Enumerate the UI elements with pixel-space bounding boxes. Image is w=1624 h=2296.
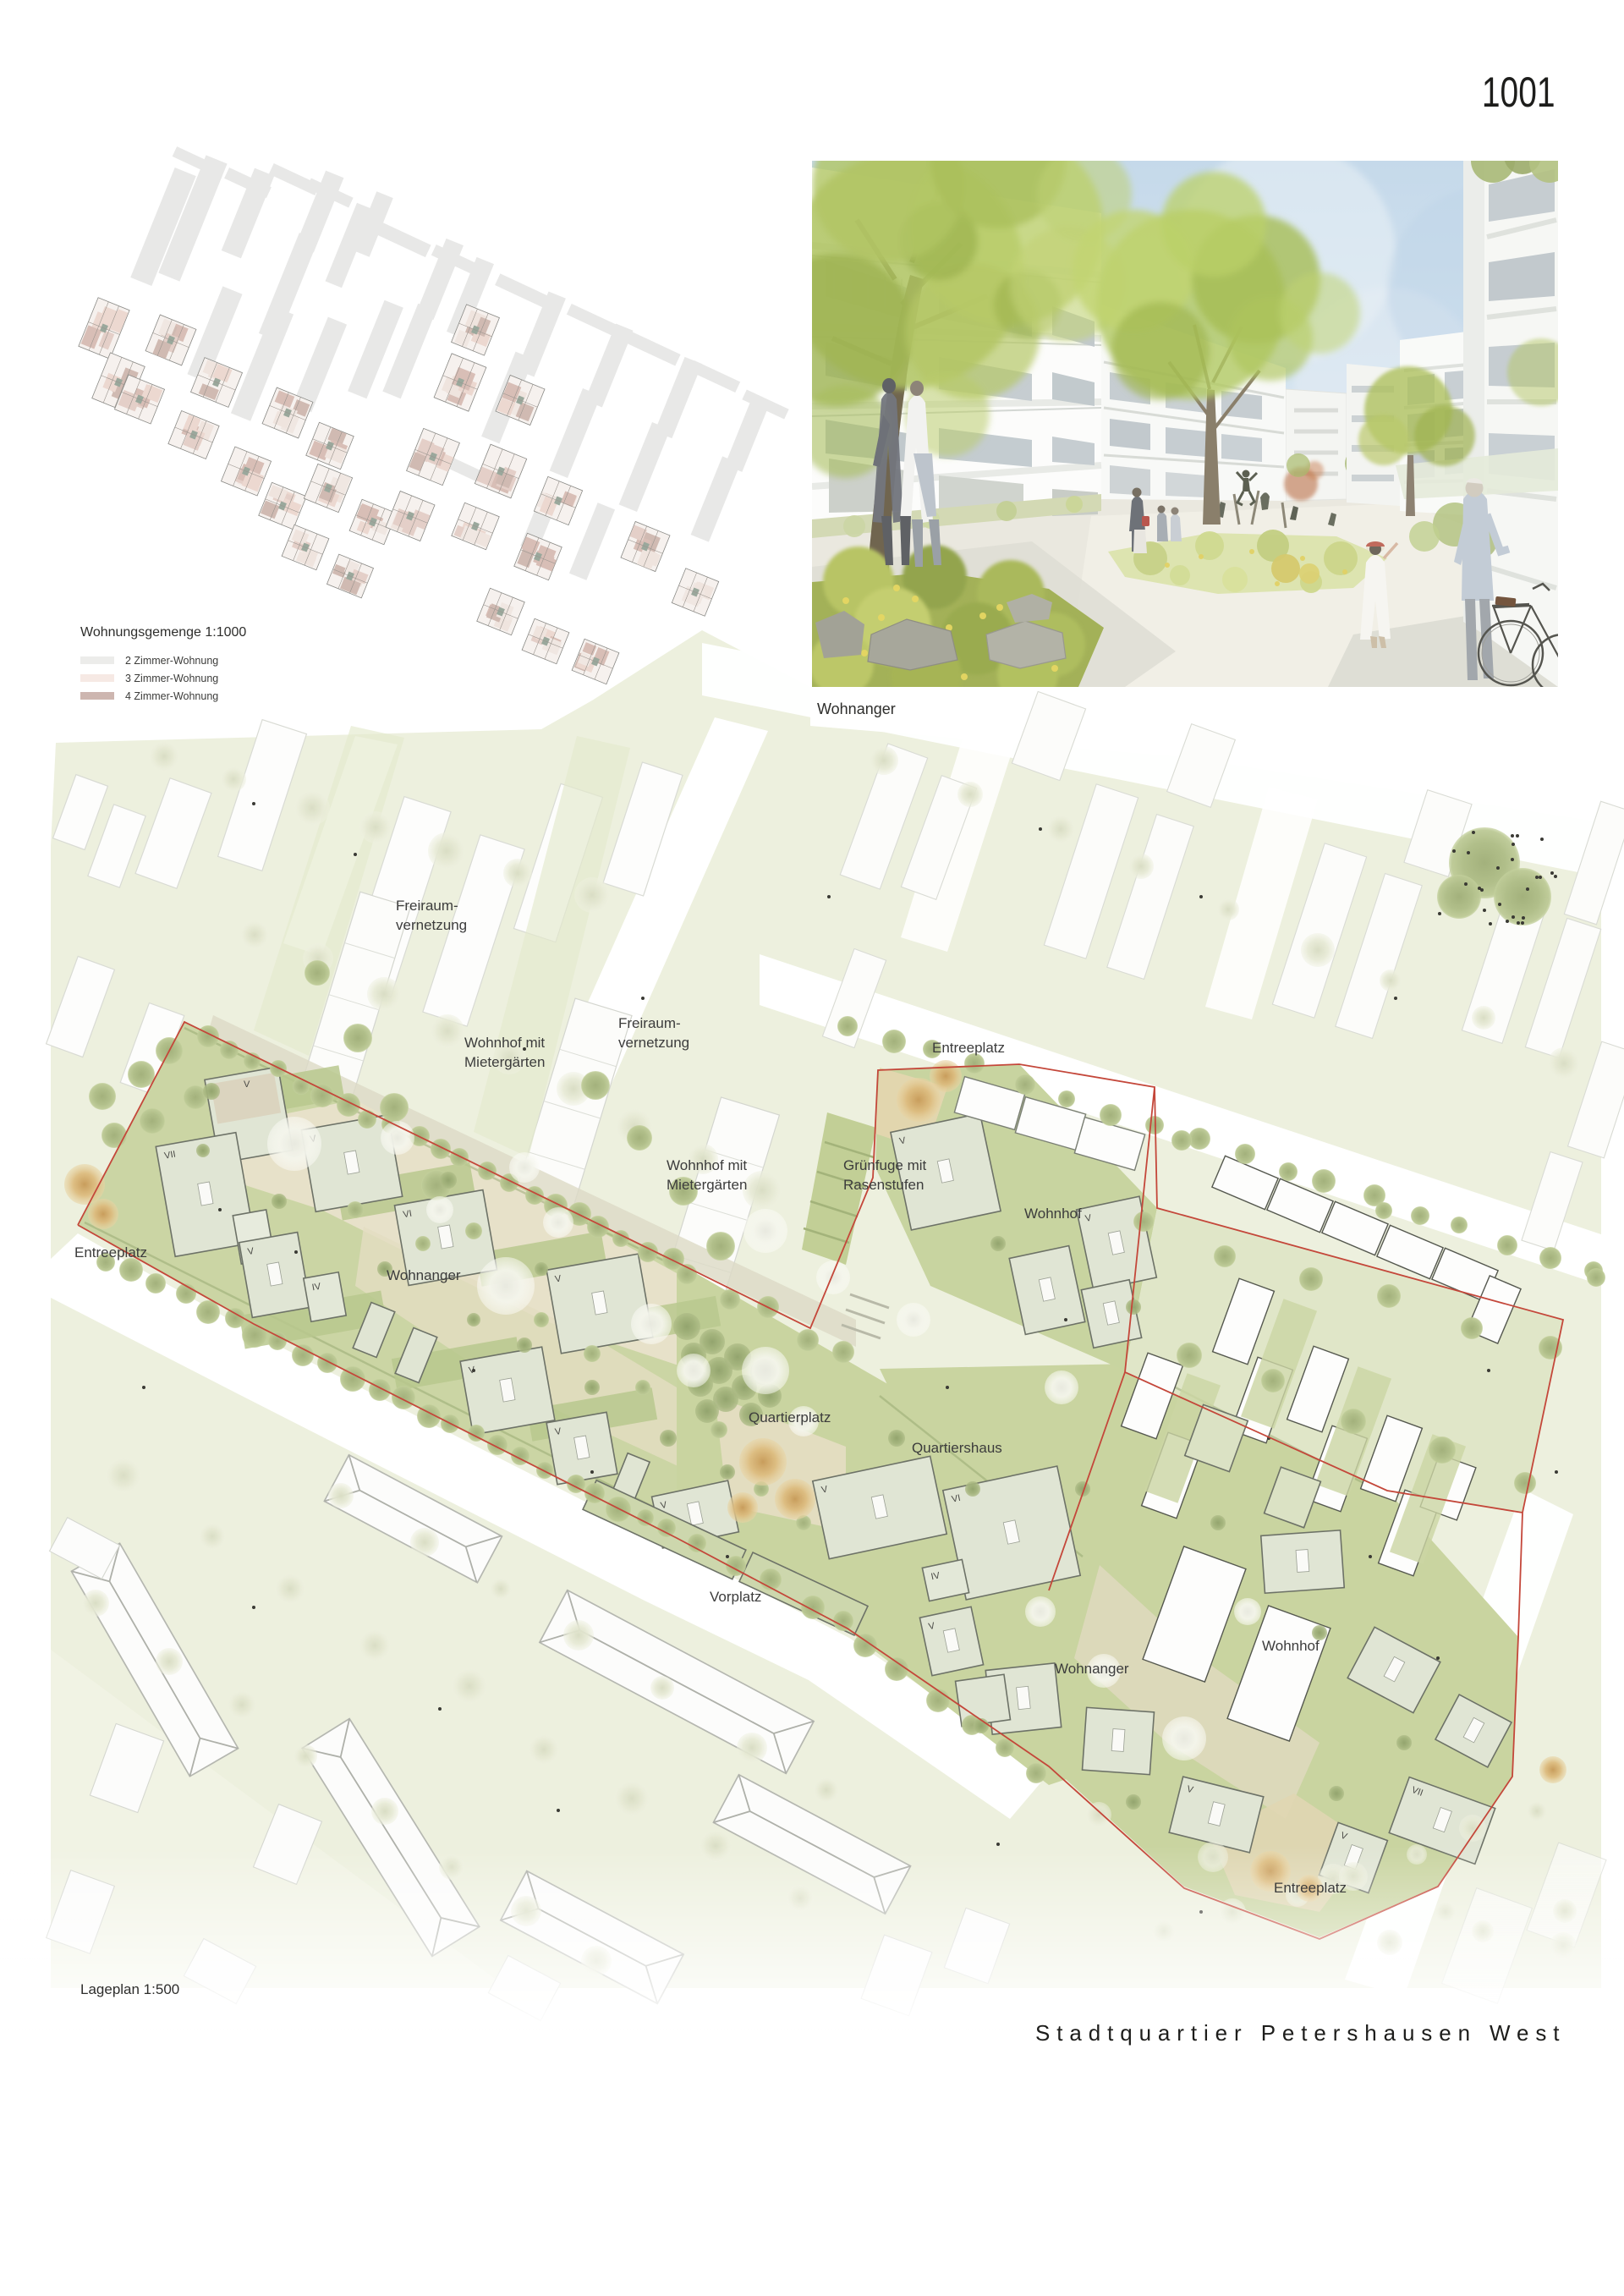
svg-text:Quartiershaus: Quartiershaus: [912, 1440, 1002, 1456]
svg-text:Rasenstufen: Rasenstufen: [843, 1177, 924, 1193]
svg-text:Wohnanger: Wohnanger: [1055, 1661, 1129, 1677]
svg-text:Wohnhof mit: Wohnhof mit: [464, 1035, 545, 1051]
svg-text:Mietergärten: Mietergärten: [667, 1177, 747, 1193]
svg-text:VII: VII: [163, 1150, 176, 1162]
svg-text:Freiraum-: Freiraum-: [618, 1015, 681, 1031]
svg-text:2 Zimmer-Wohnung: 2 Zimmer-Wohnung: [125, 655, 218, 667]
svg-text:Wohnungsgemenge 1:1000: Wohnungsgemenge 1:1000: [80, 625, 246, 640]
svg-text:Grünfuge mit: Grünfuge mit: [843, 1157, 927, 1173]
svg-text:Freiraum-: Freiraum-: [396, 898, 458, 914]
svg-text:Entreeplatz: Entreeplatz: [1274, 1880, 1347, 1896]
svg-text:VI: VI: [403, 1209, 413, 1221]
svg-text:Quartierplatz: Quartierplatz: [749, 1409, 831, 1425]
svg-text:vernetzung: vernetzung: [618, 1035, 689, 1051]
svg-text:Wohnanger: Wohnanger: [817, 700, 896, 717]
svg-text:Entreeplatz: Entreeplatz: [74, 1244, 147, 1261]
svg-text:Mietergärten: Mietergärten: [464, 1054, 545, 1070]
svg-text:Wohnhof: Wohnhof: [1024, 1206, 1082, 1222]
svg-text:Vorplatz: Vorplatz: [710, 1589, 761, 1605]
svg-text:Stadtquartier Petershausen W: Stadtquartier Petershausen West: [1035, 2020, 1566, 2046]
svg-text:Wohnanger: Wohnanger: [387, 1267, 461, 1283]
svg-text:vernetzung: vernetzung: [396, 917, 467, 933]
svg-text:1001: 1001: [1482, 68, 1555, 116]
svg-text:Lageplan 1:500: Lageplan 1:500: [80, 1981, 179, 1997]
svg-text:V: V: [244, 1079, 250, 1090]
svg-text:Entreeplatz: Entreeplatz: [932, 1040, 1005, 1056]
svg-text:Wohnhof mit: Wohnhof mit: [667, 1157, 747, 1173]
svg-text:Wohnhof: Wohnhof: [1262, 1638, 1319, 1654]
svg-text:4 Zimmer-Wohnung: 4 Zimmer-Wohnung: [125, 690, 218, 702]
svg-text:3 Zimmer-Wohnung: 3 Zimmer-Wohnung: [125, 673, 218, 684]
